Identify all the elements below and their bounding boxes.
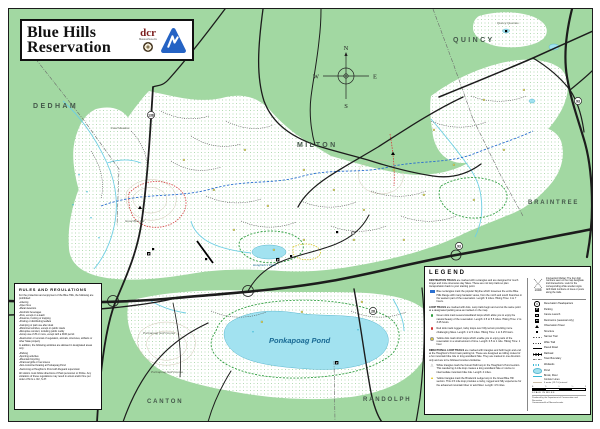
svg-text:138: 138 (148, 113, 154, 117)
red-dot-icon (431, 327, 434, 330)
rule-item: Destruction or removal of vegetation, an… (19, 337, 97, 343)
town-boundary-icon (533, 359, 542, 360)
town-label-canton: CANTON (147, 399, 183, 405)
wide-trail-icon (533, 343, 542, 344)
railroad-icon (533, 353, 542, 356)
yellow-dot-icon (430, 337, 435, 342)
label-ponkapoag-pond: Ponkapoag Pond (269, 336, 331, 345)
legend-symbols: 1085 Intersection Marker: The four digit… (530, 278, 586, 412)
green-loop-description: Green dots mark several woodland loops w… (437, 314, 523, 324)
skyline-trail-icon (430, 290, 435, 293)
map-title: Blue Hills Reservation (27, 25, 111, 55)
rules-title: RULES AND REGULATIONS (19, 287, 97, 292)
town-label-quincy: QUINCY (453, 37, 495, 44)
label-fowl-meadow: Fowl Meadow (111, 126, 130, 130)
green-dot-icon (431, 314, 434, 317)
rules-footer: All visitors must follow directions of P… (19, 372, 97, 382)
contour-lines-icon (533, 382, 542, 383)
label-quincy-quarries: Quincy Quarries (497, 21, 519, 25)
parking-icon: P (535, 308, 539, 312)
dcr-logo: dcr Massachusetts (139, 28, 157, 52)
rule-item: Swimming at Houghton's Pond with lifegua… (19, 368, 97, 371)
town-label-dedham: DEDHAM (33, 103, 78, 110)
town-label-randolph: RANDOLPH (363, 397, 411, 403)
skyline-description: Blue rectangles mark the popular Skyline… (437, 290, 523, 303)
label-golf-course-2: Ponkapoag Golf Course (151, 370, 183, 374)
canoe-launch-icon (535, 314, 539, 318)
compass-w: W (313, 74, 320, 81)
rules-allowed-intro: In addition, the following activities ar… (19, 344, 97, 351)
restrooms-icon (535, 319, 539, 323)
structure-icon (536, 331, 539, 334)
dcr-triangle-logo-icon (160, 27, 187, 54)
compass-e: E (373, 74, 377, 81)
red-loop-description: Red dots mark rugged, rocky loops over h… (437, 327, 523, 334)
intersection-marker-icon: 1085 (532, 278, 544, 297)
svg-text:P: P (148, 252, 150, 256)
map-title-block: Blue Hills Reservation dcr Massachusetts (20, 19, 194, 61)
white-triangle-icon: △ (431, 364, 434, 368)
rules-allowed-list: Parking Sporting activities Mountain bic… (19, 352, 97, 371)
svg-text:P: P (277, 258, 279, 262)
label-golf-course-1: Ponkapoag Golf Course (143, 331, 175, 335)
rules-intro: For the protection and enjoyment of the … (19, 294, 97, 301)
white-triangle-description: White triangles mark the Forest Path loo… (437, 364, 523, 374)
label-great-blue-hill: Great Blue Hill (125, 219, 145, 223)
compass-n: N (344, 45, 349, 52)
town-label-milton: MILTON (297, 142, 338, 149)
state-seal-icon (143, 42, 153, 52)
svg-text:1085: 1085 (534, 288, 541, 292)
paved-road-icon (533, 348, 542, 349)
intersection-note: Intersection Marker: The four digit numb… (546, 278, 586, 297)
legend-title: LEGEND (429, 270, 586, 276)
narrow-trail-icon (533, 337, 542, 338)
page-sheet: P P P (0, 0, 600, 429)
legend-divider (527, 278, 528, 412)
compass-s: S (344, 103, 348, 110)
legend-panel: LEGEND DESTINATION TRAILS are marked wit… (424, 266, 591, 415)
svg-text:28: 28 (371, 309, 375, 313)
yellow-loop-description: Yellow dots mark short loops which enabl… (437, 337, 523, 347)
legend-trail-descriptions: DESTINATION TRAILS are marked with recta… (429, 278, 525, 412)
town-label-braintree: BRAINTREE (528, 200, 579, 206)
houghtons-pond (252, 245, 286, 259)
rules-and-regulations-panel: RULES AND REGULATIONS For the protection… (14, 283, 102, 410)
yellow-triangle-description: Yellow triangles mark the Broderick Ledg… (437, 377, 523, 387)
scale-bar: 0¼½¾1 SCALE IN MILES (532, 386, 586, 393)
legend-credits: Produced by the Department of Conservati… (532, 395, 586, 405)
rules-prohibited-list: Littering Open fires Metal detectors Alc… (19, 301, 97, 343)
svg-text:P: P (336, 361, 338, 365)
observation-tower-icon (535, 325, 539, 328)
observation-tower-marker (391, 152, 395, 155)
brook-river-icon (533, 376, 542, 377)
svg-text:93: 93 (457, 244, 461, 248)
svg-text:93: 93 (576, 99, 580, 103)
wetlands-icon (533, 364, 541, 366)
label-houghtons-pond: Houghton's Pond (253, 263, 276, 267)
yellow-triangle-icon: ▲ (430, 377, 434, 381)
compass-rose: N S W E (313, 45, 377, 110)
